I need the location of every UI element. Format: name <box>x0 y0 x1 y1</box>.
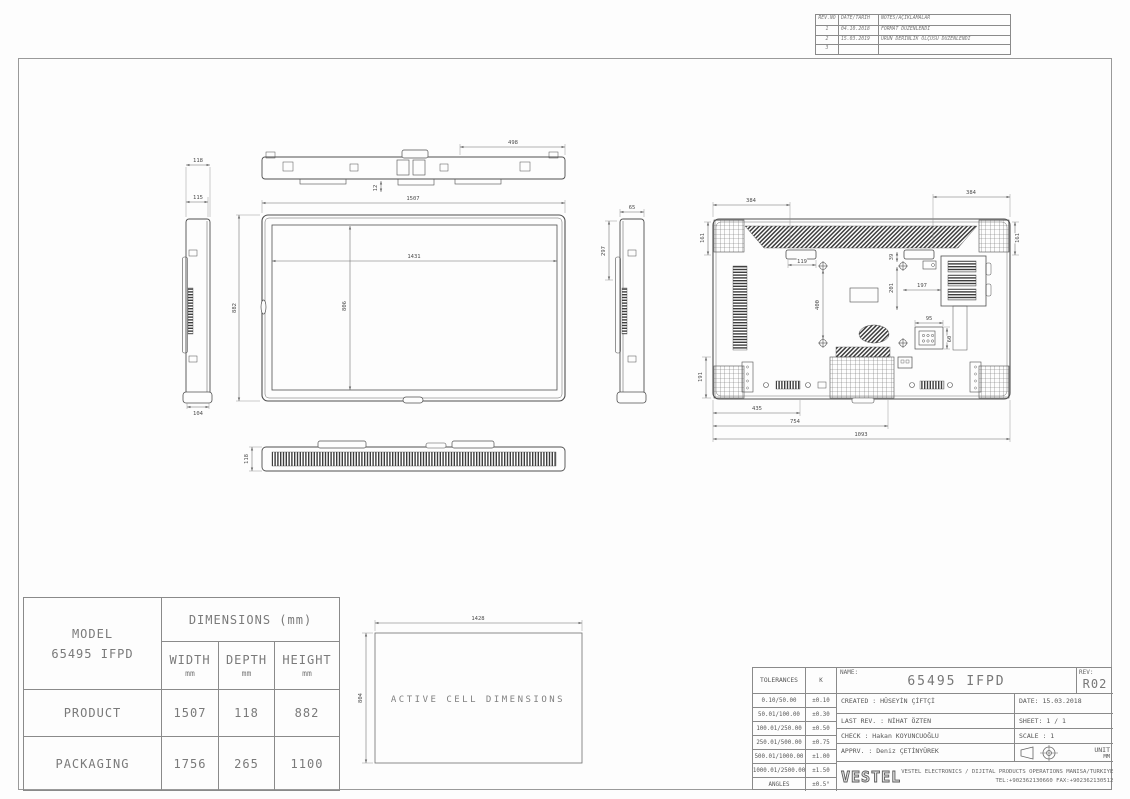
tolerances-k: K <box>805 668 836 693</box>
side-view-left: 118 115 104 <box>183 158 213 417</box>
unit-value: MM <box>1094 754 1110 760</box>
dim-label: 191 <box>698 372 704 382</box>
tolerances-title: TOLERANCES <box>753 668 805 693</box>
revision-table: REV.NO DATE/TARİH NOTES/AÇIKLAMALAR 1 04… <box>815 14 1011 55</box>
dim-label: 104 <box>193 411 204 417</box>
rev-row-note <box>878 44 1010 54</box>
dim-label: 201 <box>889 283 895 293</box>
model-cell: MODEL 65495 IFPD <box>24 598 162 690</box>
company-line1: VESTEL ELECTRONICS / DIJITAL PRODUCTS OP… <box>901 768 1113 776</box>
unit-cell: UNIT MM <box>1014 743 1113 761</box>
dim-label: 384 <box>746 198 757 204</box>
rear-view: 384 384 161 161 119 400 39 201 197 95 60… <box>698 190 1021 442</box>
rev-row-date <box>838 44 878 54</box>
dim-label: 161 <box>700 233 706 243</box>
packaging-depth: 265 <box>219 737 275 791</box>
date-cell: DATE: 15.03.2018 <box>1014 693 1113 713</box>
dim-label: 297 <box>601 246 607 256</box>
packaging-width: 1756 <box>162 737 219 791</box>
dim-label: 754 <box>790 419 801 425</box>
dim-label: 119 <box>797 259 807 265</box>
created-cell: CREATED : HÜSEYİN ÇİFTÇİ <box>836 693 1014 713</box>
bottom-view: 118 <box>244 441 565 471</box>
company-line2: TEL:+902362130660 FAX:+902362130512 <box>901 777 1113 785</box>
dim-label: 882 <box>232 303 238 313</box>
col-height: HEIGHT mm <box>275 642 340 690</box>
rev-row-date: 15.03.2019 <box>838 35 878 45</box>
scale-cell: SCALE : 1 <box>1014 728 1113 743</box>
dim-label: 115 <box>193 195 203 201</box>
product-row: PRODUCT 1507 118 882 <box>24 690 340 737</box>
top-view: 498 12 <box>262 140 565 192</box>
dim-label: 384 <box>966 190 977 196</box>
dim-label: 435 <box>752 406 762 412</box>
dim-label: 1507 <box>406 196 419 202</box>
rev-row-no: 2 <box>816 35 838 45</box>
apprv-cell: APPRV. : Deniz ÇETİNYÜREK <box>836 743 1014 761</box>
dim-label: 1431 <box>407 254 420 260</box>
dim-label: 39 <box>889 254 895 261</box>
sheet-cell: SHEET: 1 / 1 <box>1014 713 1113 728</box>
lastrev-cell: LAST REV. : NİHAT ÖZTEN <box>836 713 1014 728</box>
vestel-logo: VESTEL <box>841 768 901 786</box>
dim-label: 118 <box>193 158 203 164</box>
model-label: MODEL <box>25 627 160 641</box>
rev-value: R02 <box>1077 677 1113 691</box>
rev-row-no: 1 <box>816 25 838 35</box>
dim-label: 118 <box>244 454 250 464</box>
product-width: 1507 <box>162 690 219 737</box>
active-cell-label: ACTIVE CELL DIMENSIONS <box>391 695 565 705</box>
rev-row-no: 3 <box>816 44 838 54</box>
dim-label: 95 <box>926 316 933 322</box>
rev-label: REV: <box>1079 669 1093 676</box>
rev-header-no: REV.NO <box>816 15 838 25</box>
rev-header-date: DATE/TARİH <box>838 15 878 25</box>
col-depth: DEPTH mm <box>219 642 275 690</box>
unit-label: UNIT <box>1094 746 1110 754</box>
side-view-right: 65 297 <box>601 205 646 403</box>
rev-row-note: FORMAT DÜZENLENDİ <box>878 25 1010 35</box>
product-depth: 118 <box>219 690 275 737</box>
drawing-sheet: { "revision_table": { "headers": { "no":… <box>0 0 1130 799</box>
dim-label: 1428 <box>471 616 484 622</box>
dim-label: 804 <box>358 692 364 703</box>
dim-label: 65 <box>629 205 636 211</box>
name-label: NAME: <box>840 669 858 676</box>
title-block: TOLERANCES K 0.10/50.00 ±0.10 50.01/100.… <box>752 667 1112 790</box>
packaging-row: PACKAGING 1756 265 1100 <box>24 737 340 791</box>
tolerances-table: TOLERANCES K 0.10/50.00 ±0.10 50.01/100.… <box>753 668 836 791</box>
projection-symbol-icon <box>1019 745 1071 761</box>
front-view: 1507 1431 882 806 <box>232 196 565 403</box>
rev-row-note: ÜRÜN DERİNLİK ÖLÇÜSÜ DÜZENLENDİ <box>878 35 1010 45</box>
col-width: WIDTH mm <box>162 642 219 690</box>
drawing-name: 65495 IFPD <box>837 674 1076 689</box>
logo-cell: VESTEL VESTEL ELECTRONICS / DIJITAL PROD… <box>836 761 1113 791</box>
vent-band <box>745 226 977 248</box>
model-value: 65495 IFPD <box>25 647 160 661</box>
product-height: 882 <box>275 690 340 737</box>
dim-label: 197 <box>917 283 927 289</box>
dim-label: 60 <box>947 336 953 343</box>
name-cell: NAME: 65495 IFPD <box>836 668 1076 693</box>
dimensions-header: DIMENSIONS (mm) <box>162 598 340 642</box>
active-cell-view: 1428 804 ACTIVE CELL DIMENSIONS <box>358 616 582 763</box>
rev-cell: REV: R02 <box>1076 668 1113 693</box>
dim-label: 400 <box>815 300 821 310</box>
packaging-label: PACKAGING <box>24 737 162 791</box>
dim-label: 161 <box>1015 233 1021 243</box>
check-cell: CHECK : Hakan KOYUNCUOĞLU <box>836 728 1014 743</box>
dim-label: 12 <box>373 185 379 192</box>
packaging-height: 1100 <box>275 737 340 791</box>
rev-header-note: NOTES/AÇIKLAMALAR <box>878 15 1010 25</box>
dim-label: 806 <box>342 301 348 311</box>
product-label: PRODUCT <box>24 690 162 737</box>
dimensions-table: MODEL 65495 IFPD DIMENSIONS (mm) WIDTH m… <box>23 597 340 791</box>
rev-row-date: 04.10.2018 <box>838 25 878 35</box>
dim-label: 1093 <box>854 432 867 438</box>
dim-label: 498 <box>508 140 518 146</box>
